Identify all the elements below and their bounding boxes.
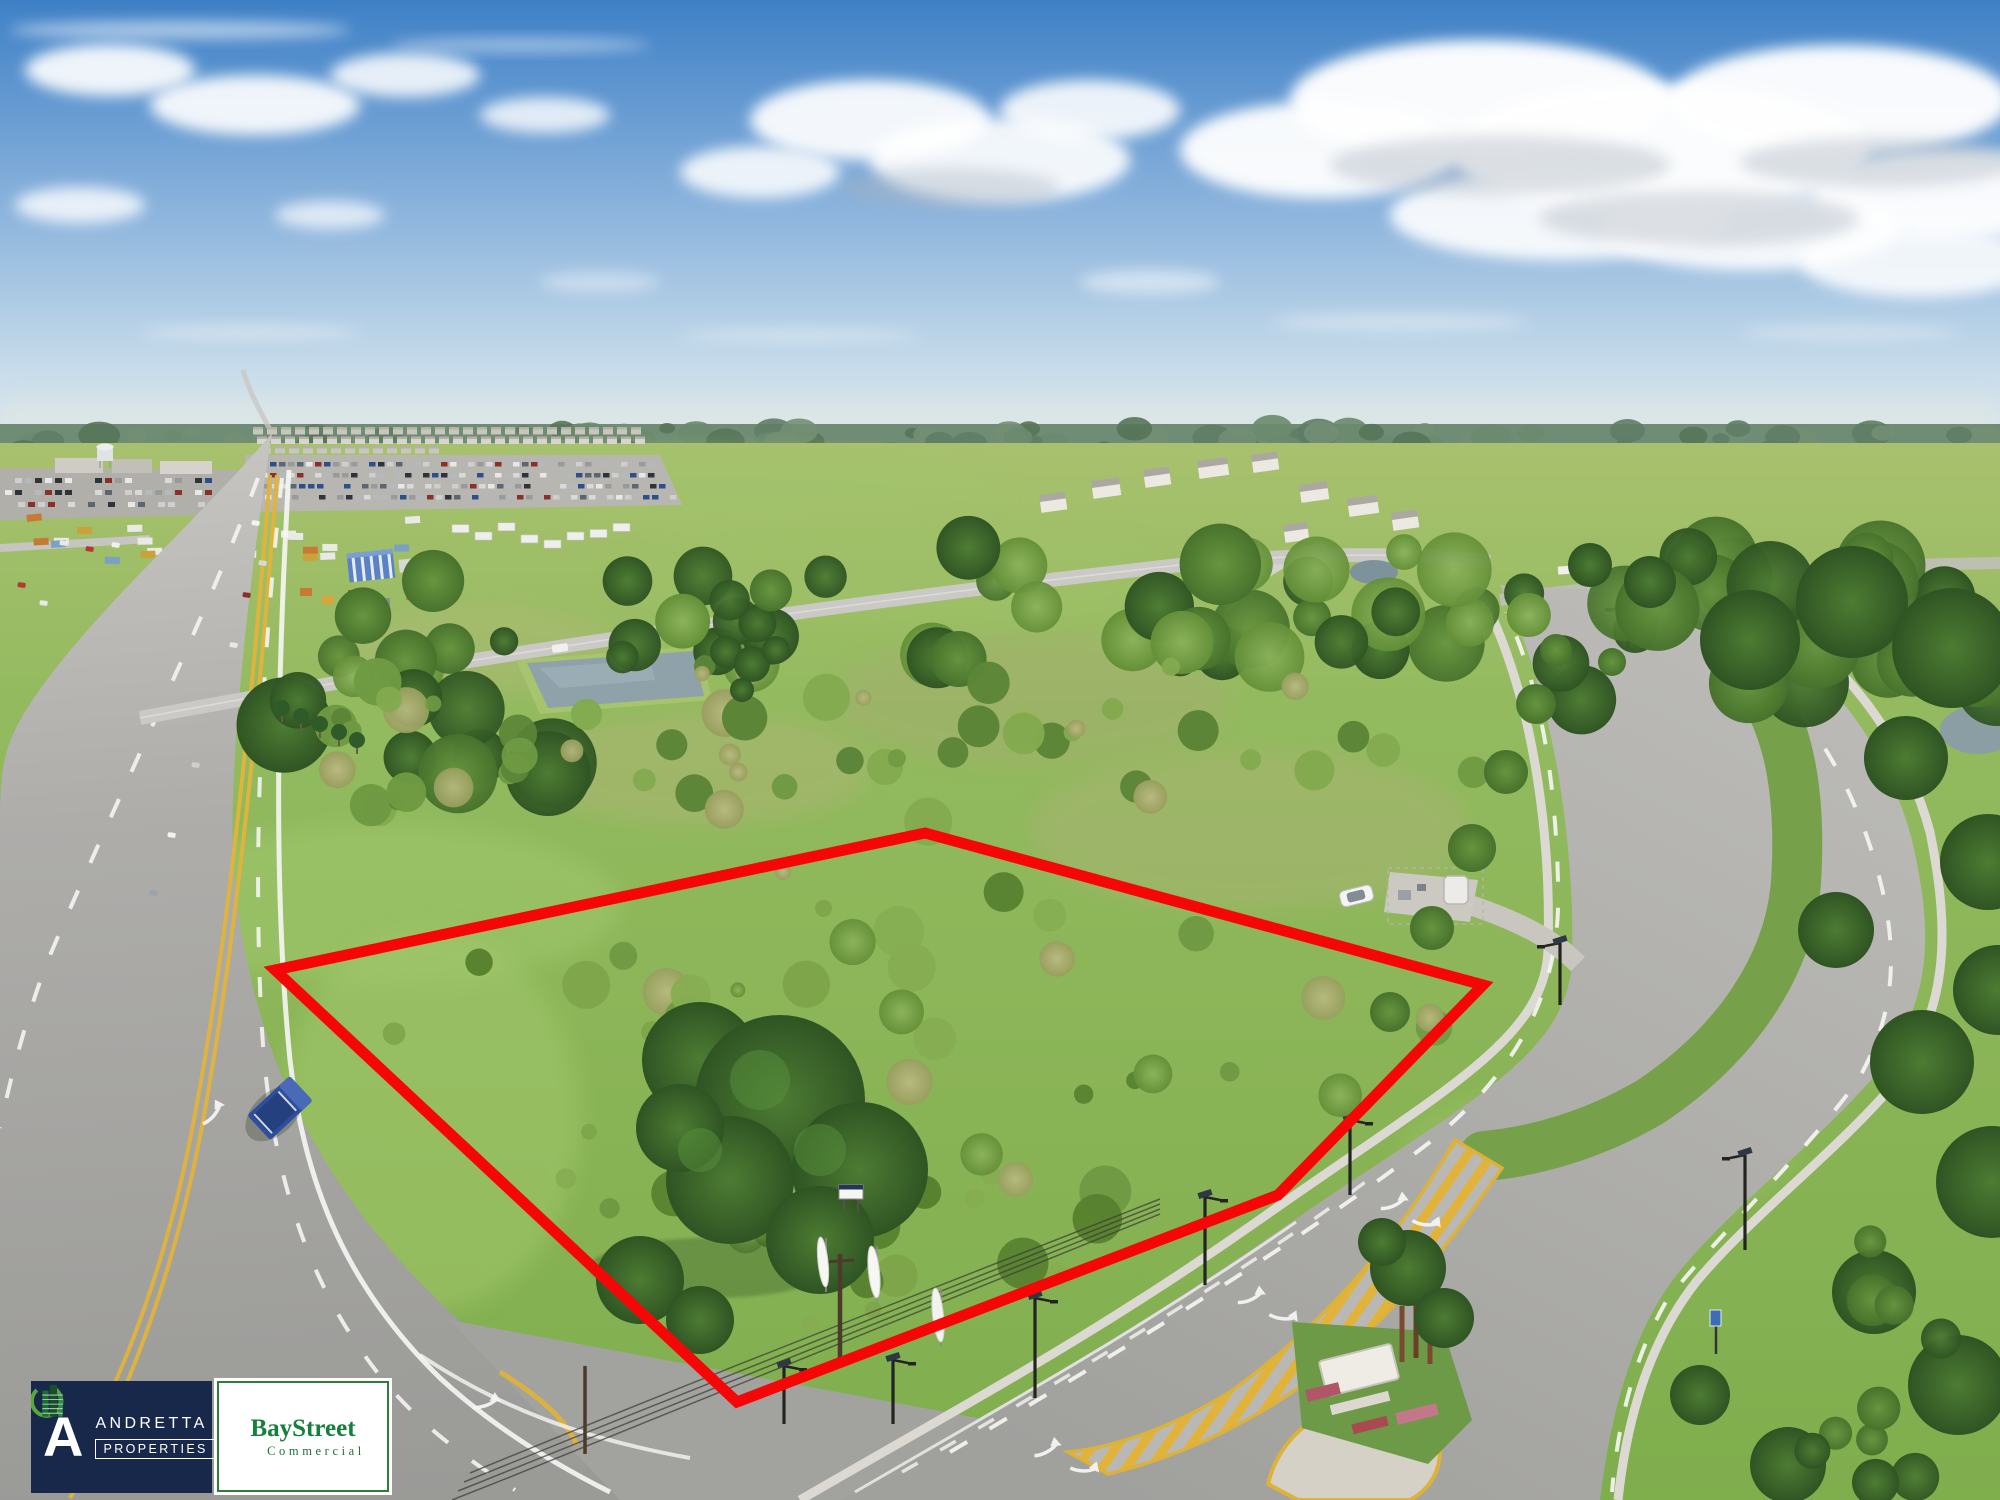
baystreet-name: BayStreet: [250, 1415, 355, 1443]
scene-canvas: [0, 0, 2000, 1500]
building-swoosh-icon: [31, 1381, 65, 1425]
baystreet-descriptor: Commercial: [267, 1444, 365, 1459]
strip-mall: [55, 458, 103, 473]
baystreet-commercial-logo: BayStreet Commercial: [217, 1381, 389, 1492]
blue-striped-warehouse: [347, 549, 396, 583]
broker-logos: A ANDRETTA PROPERTIES BayStreet Commerci…: [31, 1381, 389, 1493]
andretta-descriptor: PROPERTIES: [95, 1439, 215, 1459]
aerial-parcel-photo: A ANDRETTA PROPERTIES BayStreet Commerci…: [0, 0, 2000, 1500]
andretta-name: ANDRETTA: [95, 1415, 207, 1433]
